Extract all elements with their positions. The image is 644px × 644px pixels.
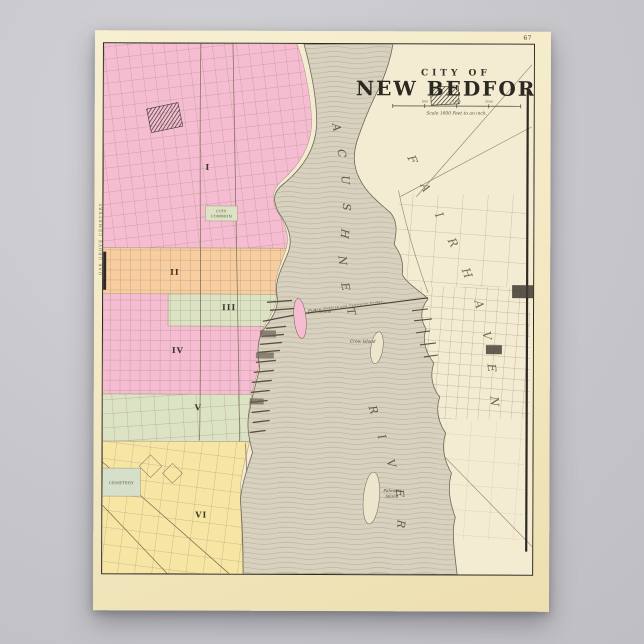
fairhaven-block-1: [512, 285, 534, 298]
waterfront-block-3: [250, 398, 264, 404]
waterfront-block-2: [256, 352, 274, 358]
page-number: 67: [523, 35, 532, 42]
ward-5-label: V: [194, 402, 202, 412]
ward-6-street-grid: [102, 441, 249, 574]
map-canvas: New Bedford and Fairhaven Bridge Fish Is…: [102, 43, 534, 574]
west-margin-bar: [102, 252, 106, 290]
ward-2-label: II: [170, 267, 180, 277]
ward-5-street-grid: [103, 394, 252, 442]
city-common-label-1: CITY: [216, 209, 227, 213]
map-poster: 67 OAK GROVE CEMETERY: [93, 30, 551, 612]
city-common: CITY COMMON: [205, 206, 237, 221]
ward-3-label: III: [222, 302, 236, 312]
map-frame: New Bedford and Fairhaven Bridge Fish Is…: [101, 42, 535, 576]
ward-1-label: I: [206, 162, 211, 172]
city-common-label-2: COMMON: [211, 214, 233, 218]
ward-6-label: VI: [194, 509, 207, 519]
ward-4-label: IV: [172, 345, 184, 355]
scale-tick-2: 1600: [453, 100, 461, 104]
scale-tick-3: 2400: [485, 100, 493, 104]
fish-island-label: Fish Island: [307, 308, 332, 313]
crow-island-label: Crow Island: [350, 339, 376, 344]
title-name: NEW BEDFORD: [356, 76, 534, 101]
scale-tick-1: 800: [422, 99, 428, 103]
waterfront-block-1: [260, 330, 276, 337]
scene: 67 OAK GROVE CEMETERY: [0, 0, 644, 644]
ward-2-street-grid: [103, 248, 286, 295]
scale-note: Scale 1600 Feet to an inch.: [426, 111, 487, 116]
cemetery-label: CEMETERY: [109, 481, 134, 485]
